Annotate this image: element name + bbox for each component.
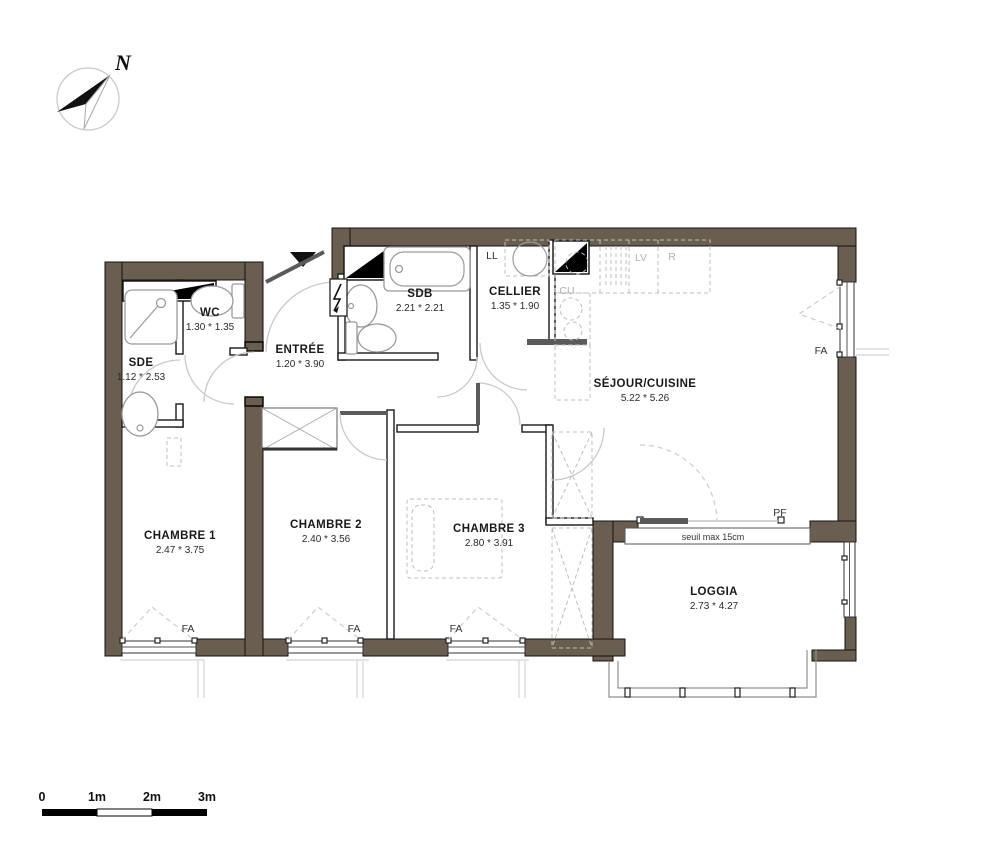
annotation-fa-chambre2: FA xyxy=(348,623,361,635)
compass-needle xyxy=(57,75,110,112)
cellier-door-leaf xyxy=(527,339,587,345)
window-loggia-right xyxy=(842,542,855,617)
annotation-seuil: seuil max 15cm xyxy=(682,532,745,542)
pf-door-arc xyxy=(640,445,717,522)
sde-shower xyxy=(125,290,177,344)
annotation-pf-loggia: PF xyxy=(773,507,786,519)
room-dims-chambre1: 2.47 * 3.75 xyxy=(156,545,205,556)
annotation-fa-chambre1: FA xyxy=(182,623,195,635)
fixtures xyxy=(122,240,710,648)
room-labels: WC1.30 * 1.35SDE1.12 * 2.53ENTRÉE1.20 * … xyxy=(117,286,739,612)
north-label: N xyxy=(114,50,132,75)
compass-needle-tail xyxy=(84,75,110,129)
pf-door-leaf xyxy=(640,518,688,524)
radiator xyxy=(167,438,181,466)
scale-label-1m: 1m xyxy=(88,790,106,804)
annotation-fa-chambre3: FA xyxy=(450,623,463,635)
electrical-panel xyxy=(330,279,347,316)
scale-label-2m: 2m xyxy=(143,790,161,804)
sejour-door-arc xyxy=(552,428,604,480)
shutter-box-sejour xyxy=(553,241,589,274)
room-dims-loggia: 2.73 * 4.27 xyxy=(690,601,739,612)
cellier-door-arc xyxy=(480,343,527,390)
loggia-railing xyxy=(609,650,816,697)
floor-plan-drawing: N 01m2m3m WC1.30 * 1.35SDE1.12 * 2.53ENT… xyxy=(0,0,1000,857)
room-label-sdb: SDB xyxy=(407,288,432,300)
sdb-sink xyxy=(345,285,377,327)
annotation-cu-cuisine: CU xyxy=(559,285,574,297)
annotation-lv-cuisine: LV xyxy=(635,252,647,264)
entree-closet xyxy=(262,408,337,450)
annotation-r-cuisine: R xyxy=(668,251,676,263)
sdb-toilet xyxy=(346,322,396,354)
floor-plan-page: N 01m2m3m WC1.30 * 1.35SDE1.12 * 2.53ENT… xyxy=(0,0,1000,857)
room-dims-sde: 1.12 * 2.53 xyxy=(117,372,166,383)
entry-door-arc xyxy=(266,282,336,352)
sdb-bathtub xyxy=(384,247,470,291)
room-label-loggia: LOGGIA xyxy=(690,586,738,598)
room-dims-wc: 1.30 * 1.35 xyxy=(186,322,235,333)
chambre3-door-arc xyxy=(478,383,520,425)
room-label-sejour: SÉJOUR/CUISINE xyxy=(594,377,697,390)
room-label-chambre1: CHAMBRE 1 xyxy=(144,530,216,542)
room-label-cellier: CELLIER xyxy=(489,286,541,298)
sde-sink xyxy=(122,392,158,436)
room-dims-sejour: 5.22 * 5.26 xyxy=(621,393,670,404)
scale-label-0: 0 xyxy=(39,790,46,804)
room-label-sde: SDE xyxy=(129,357,154,369)
shutter-box-sdb xyxy=(344,246,390,280)
room-dims-chambre3: 2.80 * 3.91 xyxy=(465,538,514,549)
room-label-entree: ENTRÉE xyxy=(275,343,324,356)
windows xyxy=(120,280,855,653)
kitchen-hob xyxy=(606,246,626,288)
duct-shaft xyxy=(552,432,592,648)
sdb-door-arc xyxy=(437,357,477,397)
scale-label-3m: 3m xyxy=(198,790,216,804)
room-label-chambre3: CHAMBRE 3 xyxy=(453,523,525,535)
scale-bar: 01m2m3m xyxy=(39,790,217,816)
annotation-ll-cellier: LL xyxy=(486,250,498,262)
room-dims-sdb: 2.21 * 2.21 xyxy=(396,303,445,314)
room-dims-cellier: 1.35 * 1.90 xyxy=(491,301,540,312)
room-label-chambre2: CHAMBRE 2 xyxy=(290,519,362,531)
room-dims-entree: 1.20 * 3.90 xyxy=(276,359,325,370)
chambre2-door-arc xyxy=(340,413,387,460)
room-label-wc: WC xyxy=(200,307,220,319)
north-compass: N xyxy=(57,50,132,130)
chambre1-door-arc xyxy=(204,352,254,402)
room-dims-chambre2: 2.40 * 3.56 xyxy=(302,534,351,545)
scale-bar-labels: 01m2m3m xyxy=(39,790,217,804)
annotation-fa-sejour: FA xyxy=(815,345,828,357)
pf-door xyxy=(637,445,784,524)
